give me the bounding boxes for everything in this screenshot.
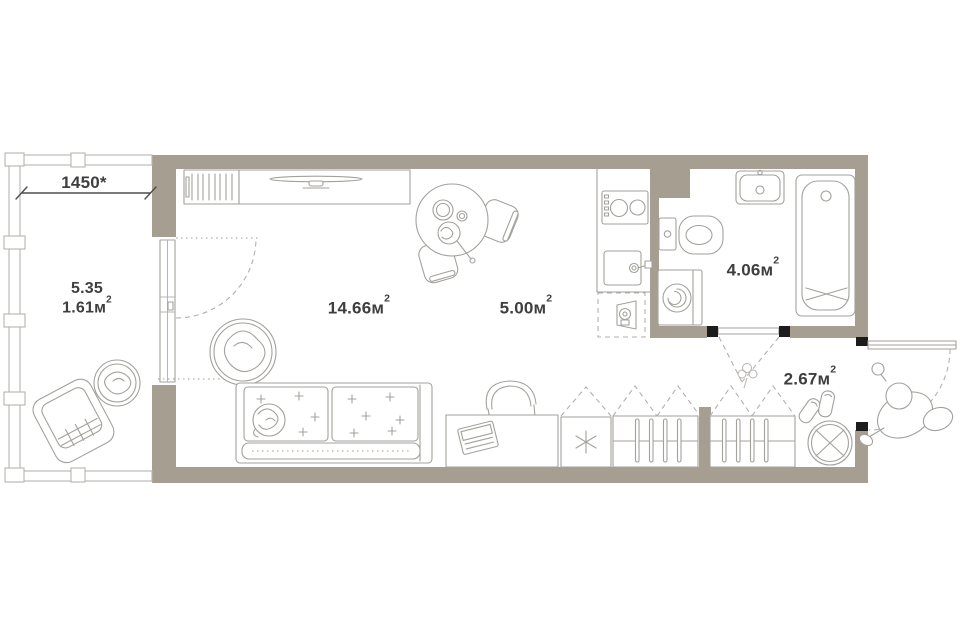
floor-plan-drawing bbox=[0, 0, 960, 640]
desk-area bbox=[446, 381, 558, 467]
superscript: 2 bbox=[830, 364, 836, 376]
kitchen-area-value: 5.00м bbox=[500, 298, 547, 317]
balcony-area-value: 1.61м bbox=[62, 300, 106, 317]
toilet bbox=[659, 216, 723, 254]
balcony-area-label: 1.61м2 bbox=[62, 298, 112, 317]
door-leaf bbox=[718, 328, 779, 334]
balcony-wall-top bbox=[152, 155, 176, 237]
hallway-area-label: 2.67м2 bbox=[784, 369, 837, 390]
door-jamb bbox=[779, 326, 790, 337]
balcony-total-area-label: 5.35 bbox=[71, 280, 103, 298]
tv-console bbox=[239, 170, 410, 204]
superscript: 2 bbox=[384, 293, 390, 305]
wardrobe-left bbox=[613, 416, 698, 467]
glazing-mullion bbox=[71, 153, 85, 167]
radiator bbox=[184, 170, 239, 204]
hanger bbox=[664, 419, 668, 462]
hanger bbox=[751, 419, 755, 462]
toilet-tank bbox=[659, 218, 676, 250]
kitchen-counter bbox=[597, 169, 652, 337]
glazing-mullion bbox=[5, 153, 24, 166]
dimension-label: 1450* bbox=[61, 173, 106, 193]
wardrobe-right bbox=[710, 416, 795, 467]
superscript: 2 bbox=[106, 294, 112, 305]
washing-machine bbox=[658, 270, 702, 325]
head bbox=[886, 383, 912, 409]
shoes bbox=[797, 390, 836, 425]
balcony-door-swing bbox=[176, 238, 256, 318]
double-bed bbox=[236, 383, 432, 463]
person-figure bbox=[857, 363, 955, 448]
hanger bbox=[765, 419, 769, 462]
hanger bbox=[723, 419, 727, 462]
bath-bottom-wall-left bbox=[650, 326, 707, 338]
living-room-area-value: 14.66м bbox=[328, 298, 384, 317]
hanger bbox=[737, 419, 741, 462]
kitchen-sink bbox=[604, 251, 652, 285]
glazing-mullion bbox=[5, 468, 24, 482]
right-wall-top bbox=[855, 169, 868, 337]
faucet bbox=[630, 264, 639, 273]
door-handle bbox=[168, 302, 173, 310]
bathtub bbox=[796, 175, 855, 316]
door-jamb bbox=[856, 422, 868, 431]
closet-divider-wall bbox=[699, 407, 711, 467]
hanger bbox=[650, 419, 654, 462]
floor-plan: 1450* 5.35 1.61м2 14.66м2 5.00м2 4.06м2 … bbox=[0, 0, 960, 640]
superscript: 2 bbox=[773, 255, 779, 267]
superscript: 2 bbox=[546, 293, 552, 305]
fridge bbox=[561, 417, 611, 467]
hanger bbox=[636, 419, 640, 462]
glazing-mullion bbox=[4, 236, 25, 249]
stove bbox=[602, 191, 648, 224]
hand bbox=[872, 363, 884, 375]
glazing-mullion bbox=[71, 468, 85, 482]
closet-door-swings bbox=[561, 386, 795, 416]
bathroom-door bbox=[707, 326, 790, 388]
office-chair bbox=[486, 381, 536, 419]
balcony-pouf bbox=[94, 360, 140, 406]
kitchen-area-label: 5.00м2 bbox=[500, 298, 553, 319]
cat bbox=[253, 404, 285, 437]
bottom-wall bbox=[152, 467, 868, 483]
dishwasher bbox=[598, 293, 645, 337]
bath-bottom-wall-right bbox=[790, 326, 868, 338]
hanger bbox=[678, 419, 682, 462]
door-jamb bbox=[707, 326, 718, 337]
pouf bbox=[808, 421, 852, 465]
hallway-area-value: 2.67м bbox=[784, 369, 831, 388]
glazing-mullion bbox=[4, 314, 25, 327]
swivel-chair bbox=[210, 319, 276, 385]
dining-table bbox=[416, 184, 488, 256]
mattress bbox=[332, 387, 418, 441]
bathroom-sink bbox=[736, 170, 784, 204]
living-room-area-label: 14.66м2 bbox=[328, 298, 390, 319]
door-jamb bbox=[856, 337, 868, 346]
glazing-mullion bbox=[4, 392, 25, 405]
bathroom-area-value: 4.06м bbox=[727, 260, 774, 279]
dining-set bbox=[416, 184, 521, 285]
bathroom-area-label: 4.06м2 bbox=[727, 260, 780, 281]
